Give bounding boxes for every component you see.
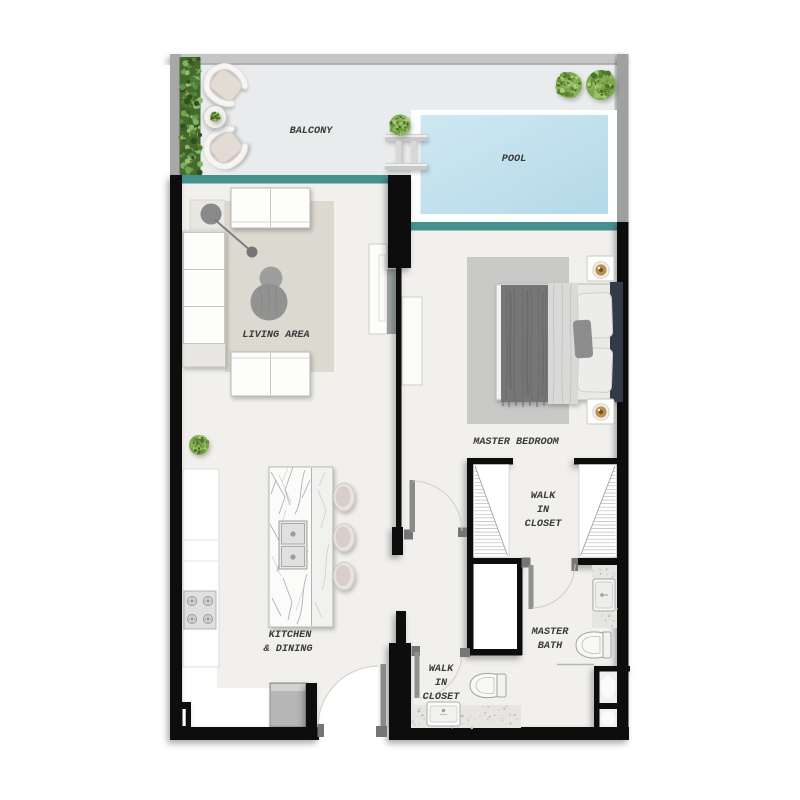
svg-text:WALK: WALK (429, 664, 454, 675)
svg-text:IN: IN (537, 505, 550, 516)
svg-text:POOL: POOL (502, 154, 526, 165)
svg-text:LIVING AREA: LIVING AREA (242, 330, 309, 341)
svg-text:CLOSET: CLOSET (423, 692, 461, 703)
svg-text:CLOSET: CLOSET (525, 519, 563, 530)
svg-text:BATH: BATH (538, 641, 563, 652)
svg-text:BALCONY: BALCONY (290, 126, 334, 137)
svg-text:& DINING: & DINING (263, 644, 313, 655)
svg-text:KITCHEN: KITCHEN (269, 630, 313, 641)
svg-text:WALK: WALK (531, 491, 556, 502)
svg-text:MASTER: MASTER (531, 627, 570, 638)
svg-text:MASTER BEDROOM: MASTER BEDROOM (472, 437, 559, 448)
svg-text:IN: IN (435, 678, 448, 689)
